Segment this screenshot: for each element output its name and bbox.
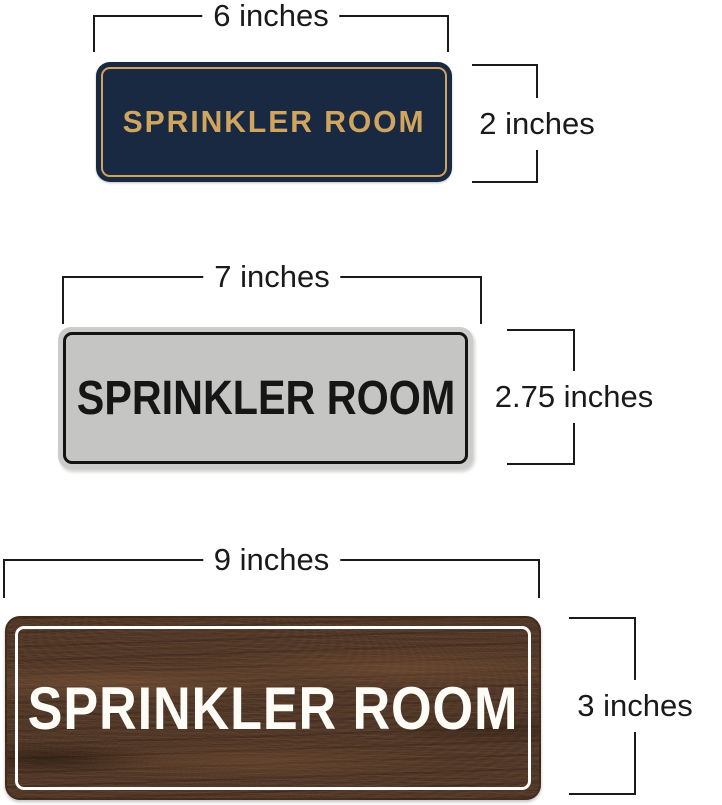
height-dimension-bracket-silver: 2.75 inches [507, 329, 575, 465]
height-dimension-label: 2.75 inches [488, 371, 661, 423]
sign-navy: SPRINKLER ROOM [96, 62, 452, 182]
sign-text: SPRINKLER ROOM [28, 674, 519, 743]
sign-text: SPRINKLER ROOM [123, 104, 426, 140]
height-dimension-bracket-wood: 3 inches [569, 617, 636, 795]
sign-silver: SPRINKLER ROOM [58, 327, 473, 469]
product-dimension-diagram: 6 inches SPRINKLER ROOM 2 inches 7 inche… [0, 0, 722, 805]
width-dimension-label: 9 inches [203, 543, 340, 577]
height-dimension-label: 3 inches [570, 680, 699, 732]
sign-wood: SPRINKLER ROOM [5, 616, 541, 800]
width-dimension-bracket-navy: 6 inches [93, 15, 449, 52]
height-dimension-label: 2 inches [472, 97, 601, 149]
width-dimension-label: 6 inches [202, 0, 339, 33]
width-dimension-bracket-silver: 7 inches [62, 276, 482, 324]
width-dimension-bracket-wood: 9 inches [3, 559, 540, 598]
sign-text: SPRINKLER ROOM [76, 371, 454, 426]
width-dimension-label: 7 inches [203, 260, 340, 294]
height-dimension-bracket-navy: 2 inches [472, 64, 538, 183]
